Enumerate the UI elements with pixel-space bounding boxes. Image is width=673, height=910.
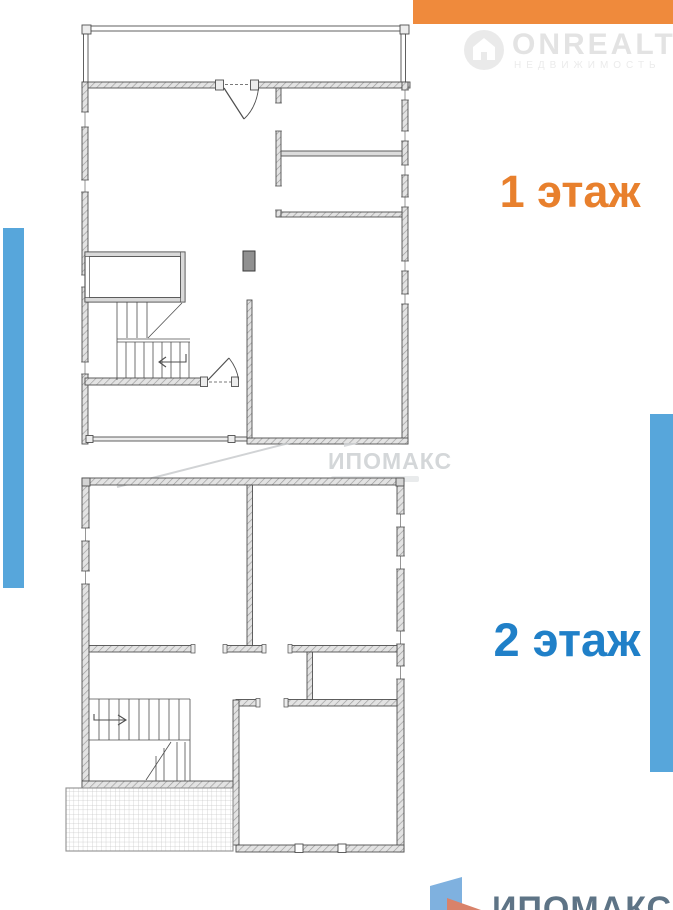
onrealt-house-pin-icon	[462, 28, 506, 72]
floor1-bottom-door	[201, 358, 239, 387]
floor1-walls	[82, 25, 410, 444]
onrealt-tagline-text: НЕДВИЖИМОСТЬ	[514, 60, 661, 71]
floor1-top-door	[216, 80, 259, 119]
floor2-plan	[58, 470, 410, 860]
floor1-closet	[85, 252, 185, 302]
floor1-label: 1 этаж	[470, 166, 670, 218]
ipomax-flag-icon	[428, 876, 482, 910]
left-accent-bar	[3, 228, 24, 588]
header-accent-bar	[413, 0, 673, 24]
onrealt-brand-text: ONREALT	[512, 28, 673, 62]
onrealt-watermark: ONREALT НЕДВИЖИМОСТЬ	[462, 26, 662, 74]
floor2-windows	[81, 514, 405, 679]
floor1-stairs	[117, 302, 190, 380]
right-accent-bar	[650, 414, 673, 772]
floor2-terrace	[66, 788, 233, 851]
floor1-plan	[75, 18, 420, 450]
footer-brand-text: ИПОМАКС	[492, 890, 672, 910]
floor2-label: 2 этаж	[462, 612, 672, 667]
page-canvas: ONREALT НЕДВИЖИМОСТЬ	[0, 0, 673, 910]
floor1-chimney	[243, 251, 255, 271]
floor1-windows	[81, 90, 409, 374]
floor2-stairs	[89, 699, 190, 781]
